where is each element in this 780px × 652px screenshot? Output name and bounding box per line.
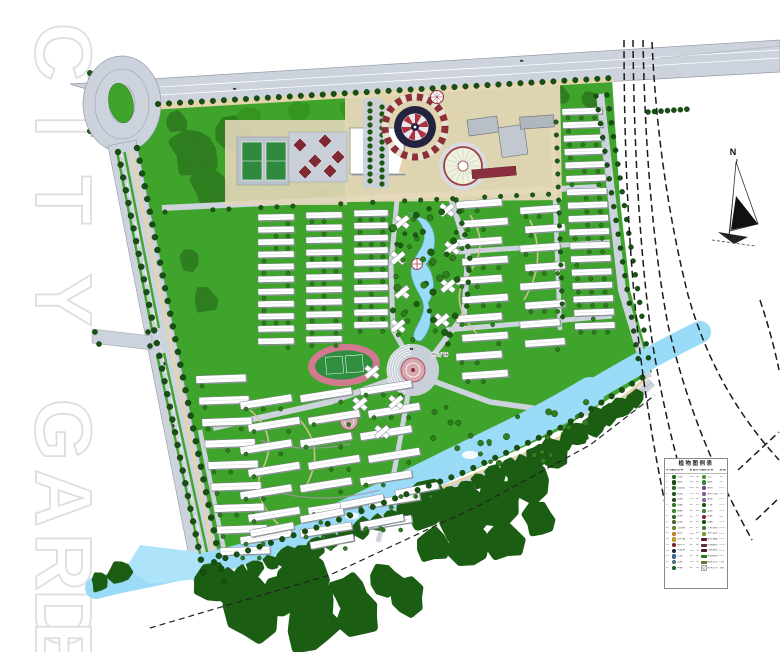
watermark-letter: T <box>19 176 108 225</box>
site-plan-map: CITYGARDEN N 中心广场 <box>0 0 780 652</box>
legend-grid: 序号图例名 称规 格序号图例名 称规 格1雪松Φ1218玉兰Φ52油松Φ1019… <box>665 468 727 571</box>
legend-plant-icon <box>702 475 706 479</box>
watermark-letter: A <box>19 469 108 527</box>
legend-plant-icon <box>702 532 706 536</box>
legend-plant-icon <box>702 526 706 530</box>
legend-plant-icon <box>672 498 676 502</box>
north-arrow: N <box>712 147 758 246</box>
legend-plant-icon <box>672 532 676 536</box>
legend-plant-icon <box>672 503 676 507</box>
plant-legend-table: 植物图例表 序号图例名 称规 格序号图例名 称规 格1雪松Φ1218玉兰Φ52油… <box>664 458 728 589</box>
legend-plant-icon <box>702 515 706 519</box>
legend-plant-icon <box>702 509 706 513</box>
legend-plant-icon <box>702 492 706 496</box>
legend-plant-icon <box>672 566 676 570</box>
legend-plant-icon <box>672 480 676 484</box>
legend-plant-icon <box>672 475 676 479</box>
legend-plant-icon <box>672 520 676 524</box>
legend-plant-icon <box>702 503 706 507</box>
legend-plant-icon <box>672 526 676 530</box>
north-label: N <box>730 147 737 157</box>
legend-plant-icon <box>672 560 676 564</box>
legend-plant-icon <box>672 549 676 553</box>
legend-plant-icon <box>701 538 707 541</box>
legend-plant-icon <box>672 515 676 519</box>
legend-plant-icon <box>702 486 706 490</box>
legend-plant-icon <box>701 555 707 558</box>
legend-plant-icon <box>702 498 706 502</box>
legend-plant-icon <box>672 543 676 547</box>
legend-plant-icon <box>701 544 707 547</box>
legend-plant-icon <box>672 486 676 490</box>
legend-plant-icon <box>701 561 707 564</box>
watermark-letter: Y <box>19 273 108 326</box>
legend-plant-icon <box>702 520 706 524</box>
legend-plant-icon <box>672 554 676 558</box>
central-plaza-label: 中心广场 <box>432 351 448 357</box>
watermark-letter: G <box>19 399 108 461</box>
legend-plant-icon <box>672 492 676 496</box>
legend-row: 17旱柳Φ834冷季型草满铺 <box>665 565 727 571</box>
watermark-letter: E <box>19 621 108 652</box>
legend-title: 植物图例表 <box>665 461 727 468</box>
legend-plant-icon <box>701 549 707 552</box>
site-plan-page: CITYGARDEN N 中心广场 植物图例表 序号图例名 称规 格序号图例名 … <box>0 0 780 652</box>
legend-plant-icon <box>702 480 706 484</box>
plan-labels: 中心广场 <box>432 351 448 357</box>
legend-plant-icon <box>672 537 676 541</box>
legend-plant-icon <box>672 509 676 513</box>
